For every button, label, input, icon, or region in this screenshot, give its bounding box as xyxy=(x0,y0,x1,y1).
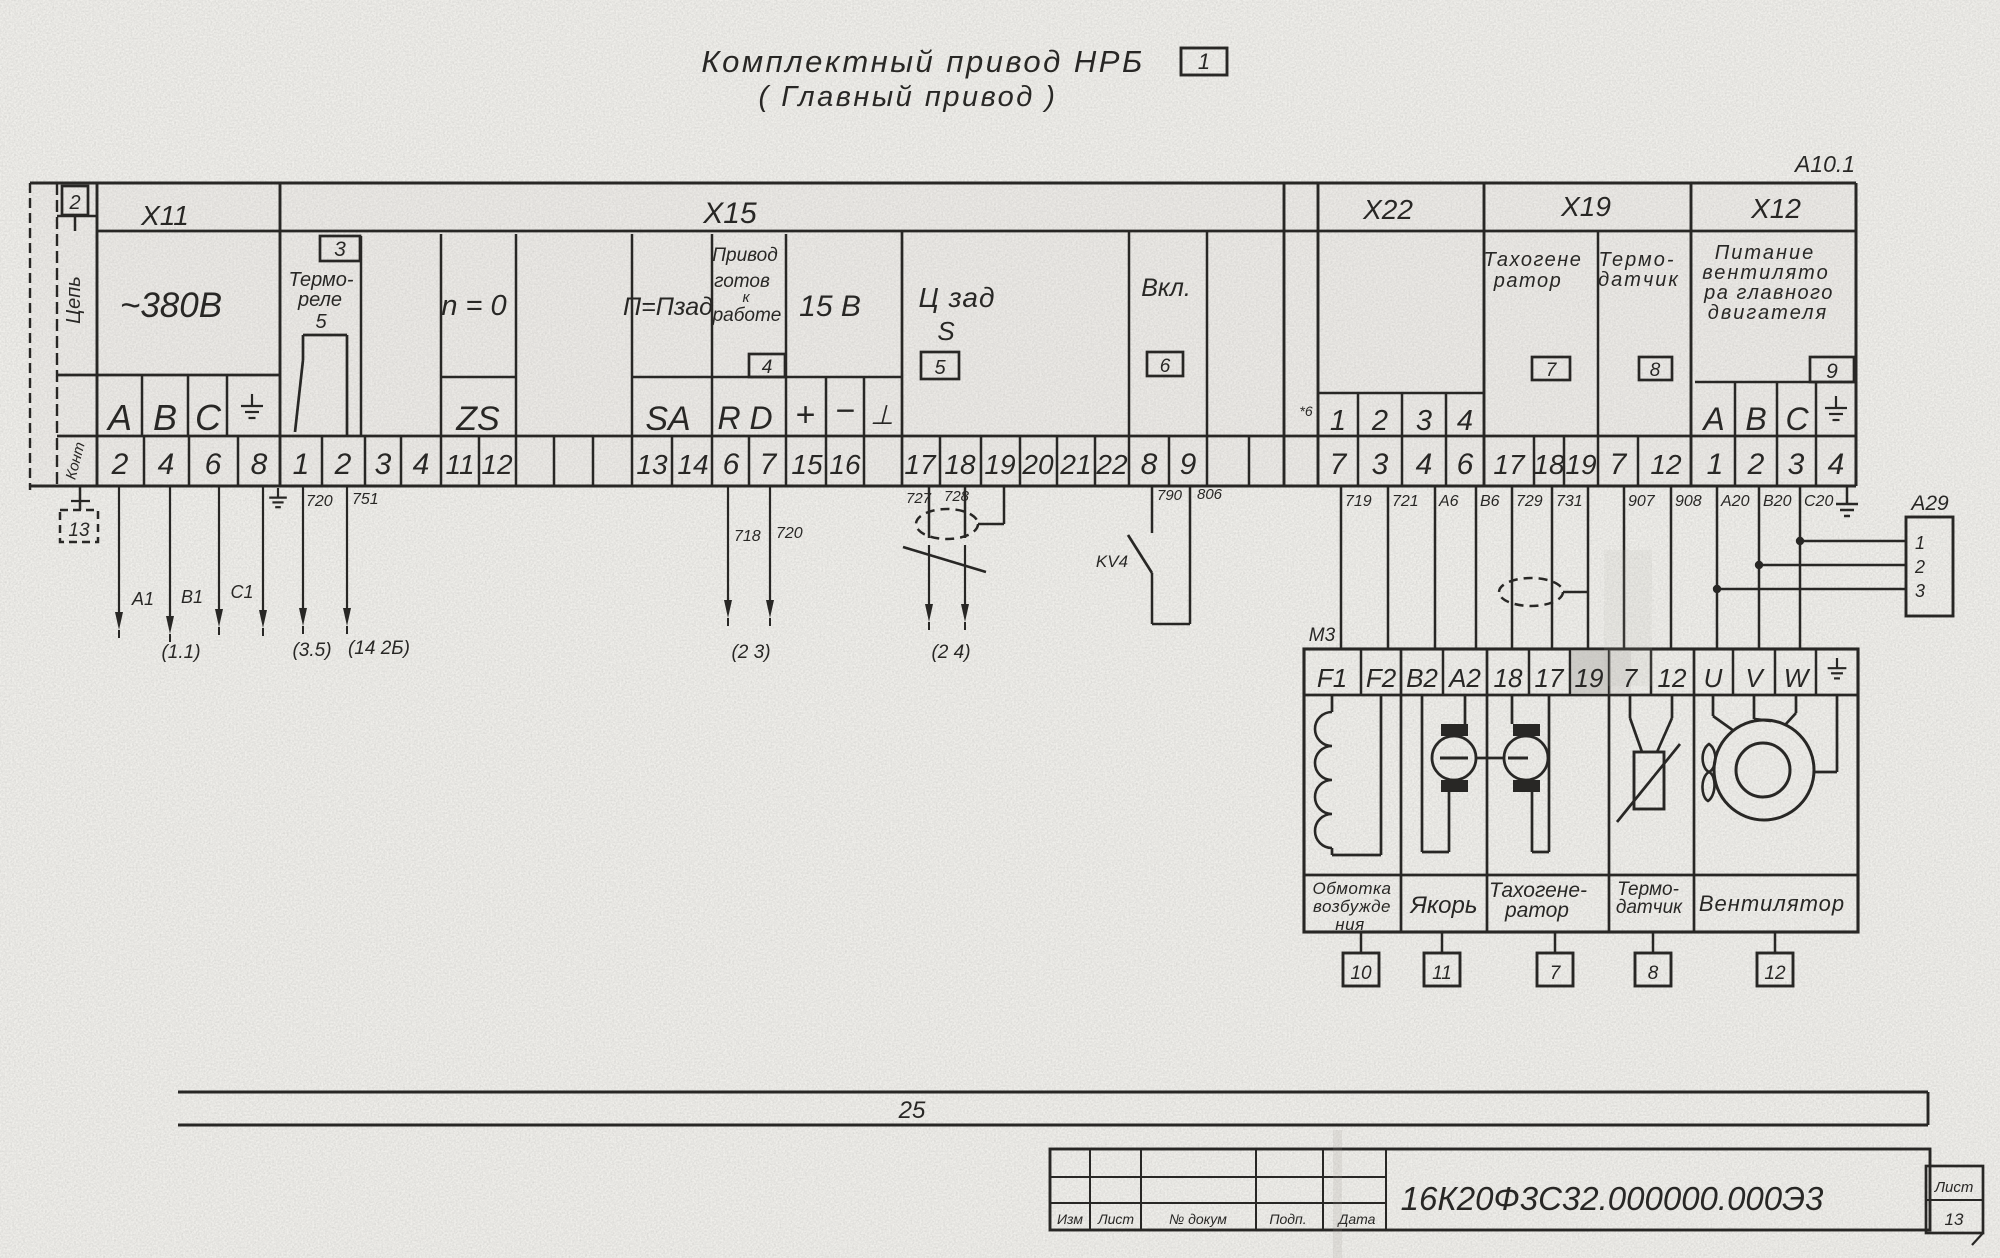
svg-text:13: 13 xyxy=(68,520,90,541)
svg-text:Вкл.: Вкл. xyxy=(1141,274,1191,302)
svg-text:4: 4 xyxy=(1828,448,1845,481)
svg-text:16К20Ф3С32.000000.000Э3: 16К20Ф3С32.000000.000Э3 xyxy=(1401,1180,1824,1217)
svg-text:6: 6 xyxy=(723,448,740,481)
svg-text:В6: В6 xyxy=(1480,493,1500,510)
svg-text:4: 4 xyxy=(413,448,430,481)
svg-text:(1.1): (1.1) xyxy=(161,642,200,663)
svg-text:С: С xyxy=(195,397,222,438)
svg-text:1: 1 xyxy=(1915,533,1925,553)
svg-text:ратор: ратор xyxy=(1504,899,1569,922)
svg-text:Привод: Привод xyxy=(712,245,777,266)
svg-text:1: 1 xyxy=(293,448,310,481)
svg-text:12: 12 xyxy=(481,449,513,480)
svg-text:Изм: Изм xyxy=(1057,1211,1083,1227)
svg-text:Лист: Лист xyxy=(1097,1211,1134,1227)
svg-text:17: 17 xyxy=(1535,663,1565,693)
svg-text:3: 3 xyxy=(1416,405,1432,437)
svg-text:Вентилятор: Вентилятор xyxy=(1699,891,1845,916)
svg-text:20: 20 xyxy=(1021,449,1054,480)
svg-text:реле: реле xyxy=(297,289,342,311)
svg-text:18: 18 xyxy=(1533,449,1565,480)
svg-text:В: В xyxy=(1745,401,1766,437)
svg-text:718: 718 xyxy=(734,528,761,545)
svg-text:13: 13 xyxy=(636,449,668,480)
svg-text:7: 7 xyxy=(1330,448,1348,481)
svg-text:7: 7 xyxy=(1550,963,1562,984)
svg-text:Обмотка: Обмотка xyxy=(1312,879,1391,898)
svg-text:датчик: датчик xyxy=(1616,897,1683,918)
svg-text:В2: В2 xyxy=(1406,663,1438,693)
svg-text:2: 2 xyxy=(68,192,80,214)
svg-text:4: 4 xyxy=(1416,448,1433,481)
svg-text:721: 721 xyxy=(1392,493,1419,510)
svg-text:3: 3 xyxy=(334,238,346,261)
svg-text:15 В: 15 В xyxy=(799,290,861,323)
svg-text:6: 6 xyxy=(1160,356,1171,377)
svg-text:18: 18 xyxy=(944,449,976,480)
svg-text:13: 13 xyxy=(1945,1210,1964,1229)
svg-text:В: В xyxy=(153,397,177,438)
svg-text:( Главный привод ): ( Главный привод ) xyxy=(759,81,1058,113)
svg-text:2: 2 xyxy=(1747,448,1765,481)
svg-text:5: 5 xyxy=(934,357,946,379)
svg-text:19: 19 xyxy=(1575,663,1604,693)
svg-text:3: 3 xyxy=(1372,448,1389,481)
svg-text:719: 719 xyxy=(1345,493,1372,510)
svg-text:806: 806 xyxy=(1197,486,1223,503)
svg-text:Х12: Х12 xyxy=(1750,193,1801,224)
svg-text:720: 720 xyxy=(306,493,333,510)
svg-text:W: W xyxy=(1784,663,1811,693)
svg-text:908: 908 xyxy=(1675,493,1702,510)
svg-text:790: 790 xyxy=(1157,487,1183,504)
svg-text:№ докум: № докум xyxy=(1169,1211,1227,1227)
svg-text:720: 720 xyxy=(776,525,803,542)
svg-text:М3: М3 xyxy=(1309,625,1336,646)
svg-text:731: 731 xyxy=(1556,493,1583,510)
svg-text:10: 10 xyxy=(1350,963,1372,984)
svg-text:S: S xyxy=(937,316,955,346)
svg-text:А6: А6 xyxy=(1438,493,1459,510)
svg-text:18: 18 xyxy=(1494,663,1523,693)
svg-text:Термо-: Термо- xyxy=(1598,249,1675,271)
svg-text:возбужде: возбужде xyxy=(1313,897,1391,916)
svg-text:Дата: Дата xyxy=(1337,1211,1376,1227)
svg-text:Лист: Лист xyxy=(1934,1179,1974,1196)
svg-text:А1: А1 xyxy=(131,589,154,609)
svg-text:7: 7 xyxy=(760,448,778,481)
svg-text:работе: работе xyxy=(712,305,782,326)
svg-text:А: А xyxy=(106,397,132,438)
svg-text:3: 3 xyxy=(1915,581,1925,601)
svg-text:датчик: датчик xyxy=(1598,269,1680,291)
svg-text:4: 4 xyxy=(158,448,175,481)
svg-text:(14 2Б): (14 2Б) xyxy=(348,638,410,659)
svg-text:*6: *6 xyxy=(1299,403,1312,419)
svg-text:Х19: Х19 xyxy=(1560,191,1611,222)
svg-text:к: к xyxy=(742,289,750,306)
svg-text:Подп.: Подп. xyxy=(1269,1211,1306,1227)
svg-text:8: 8 xyxy=(251,448,268,481)
svg-text:11: 11 xyxy=(445,449,474,480)
svg-text:(2 4): (2 4) xyxy=(931,642,970,663)
svg-text:12: 12 xyxy=(1658,663,1687,693)
svg-text:V: V xyxy=(1745,663,1765,693)
svg-text:1: 1 xyxy=(1198,49,1210,74)
svg-text:1: 1 xyxy=(1707,448,1724,481)
svg-text:А: А xyxy=(1701,401,1724,437)
svg-text:А29: А29 xyxy=(1909,492,1949,515)
svg-text:11: 11 xyxy=(1432,963,1452,984)
svg-text:4: 4 xyxy=(762,357,773,378)
svg-text:~380В: ~380В xyxy=(120,286,222,325)
svg-text:А20: А20 xyxy=(1720,493,1750,510)
svg-text:В20: В20 xyxy=(1763,493,1792,510)
svg-text:ния: ния xyxy=(1335,915,1364,934)
svg-text:Цепь: Цепь xyxy=(63,276,85,324)
svg-text:Якорь: Якорь xyxy=(1408,892,1477,919)
svg-text:R D: R D xyxy=(717,400,772,436)
svg-text:8: 8 xyxy=(1650,360,1661,381)
svg-text:2: 2 xyxy=(334,448,352,481)
svg-text:двигателя: двигателя xyxy=(1708,302,1828,324)
svg-text:Питание: Питание xyxy=(1715,242,1815,264)
svg-text:Х11: Х11 xyxy=(140,200,189,231)
svg-text:17: 17 xyxy=(1493,449,1526,480)
svg-text:15: 15 xyxy=(791,449,823,480)
svg-text:А2: А2 xyxy=(1447,663,1481,693)
svg-text:8: 8 xyxy=(1141,448,1158,481)
svg-text:2: 2 xyxy=(1914,557,1925,577)
svg-text:F1: F1 xyxy=(1317,663,1347,693)
svg-text:1: 1 xyxy=(1330,405,1346,437)
svg-text:25: 25 xyxy=(898,1097,926,1124)
svg-text:С: С xyxy=(1785,401,1809,437)
svg-text:вентилято: вентилято xyxy=(1702,262,1829,284)
svg-text:KV4: KV4 xyxy=(1096,552,1128,571)
svg-text:907: 907 xyxy=(1628,493,1656,510)
svg-text:9: 9 xyxy=(1826,360,1838,383)
svg-text:(2 3): (2 3) xyxy=(731,642,770,663)
svg-text:19: 19 xyxy=(1565,449,1596,480)
svg-text:5: 5 xyxy=(315,311,327,333)
svg-text:2: 2 xyxy=(111,448,129,481)
svg-text:7: 7 xyxy=(1546,360,1558,381)
svg-text:n = 0: n = 0 xyxy=(441,290,506,322)
svg-text:ZS: ZS xyxy=(455,400,500,438)
svg-text:+: + xyxy=(795,396,815,434)
svg-text:С1: С1 xyxy=(230,582,253,602)
svg-text:8: 8 xyxy=(1648,963,1659,984)
svg-text:(3.5): (3.5) xyxy=(292,640,331,661)
svg-text:7: 7 xyxy=(1610,448,1628,481)
svg-text:19: 19 xyxy=(984,449,1015,480)
svg-text:SA: SA xyxy=(645,400,690,438)
svg-text:6: 6 xyxy=(205,448,222,481)
svg-text:16: 16 xyxy=(829,449,861,480)
svg-text:С20: С20 xyxy=(1804,493,1833,510)
svg-text:3: 3 xyxy=(375,448,392,481)
svg-text:Комплектный привод НРБ: Комплектный привод НРБ xyxy=(701,44,1144,79)
svg-text:−: − xyxy=(835,392,855,430)
svg-text:U: U xyxy=(1704,663,1723,693)
svg-text:21: 21 xyxy=(1059,449,1091,480)
svg-text:Ц зад: Ц зад xyxy=(919,282,996,313)
svg-text:7: 7 xyxy=(1623,663,1639,693)
svg-text:П=Пзад: П=Пзад xyxy=(623,293,713,321)
svg-text:12: 12 xyxy=(1764,963,1786,984)
svg-text:2: 2 xyxy=(1371,405,1388,437)
svg-text:729: 729 xyxy=(1516,493,1543,510)
svg-text:14: 14 xyxy=(677,449,708,480)
svg-text:Тахогене: Тахогене xyxy=(1484,249,1583,271)
svg-text:Х15: Х15 xyxy=(702,197,757,230)
svg-text:4: 4 xyxy=(1457,405,1473,437)
svg-text:3: 3 xyxy=(1788,448,1805,481)
svg-text:ратор: ратор xyxy=(1493,270,1562,292)
svg-text:6: 6 xyxy=(1457,448,1474,481)
svg-text:22: 22 xyxy=(1095,449,1128,480)
svg-text:F2: F2 xyxy=(1366,663,1397,693)
svg-text:Х22: Х22 xyxy=(1362,194,1413,225)
svg-text:9: 9 xyxy=(1180,448,1197,481)
svg-text:Термо-: Термо- xyxy=(288,269,353,291)
svg-text:В1: В1 xyxy=(181,587,203,607)
svg-text:⊥: ⊥ xyxy=(870,400,894,430)
svg-text:ра главного: ра главного xyxy=(1703,282,1834,304)
svg-text:751: 751 xyxy=(352,491,379,508)
svg-text:17: 17 xyxy=(904,449,937,480)
svg-text:12: 12 xyxy=(1650,449,1682,480)
svg-text:А10.1: А10.1 xyxy=(1793,151,1855,177)
